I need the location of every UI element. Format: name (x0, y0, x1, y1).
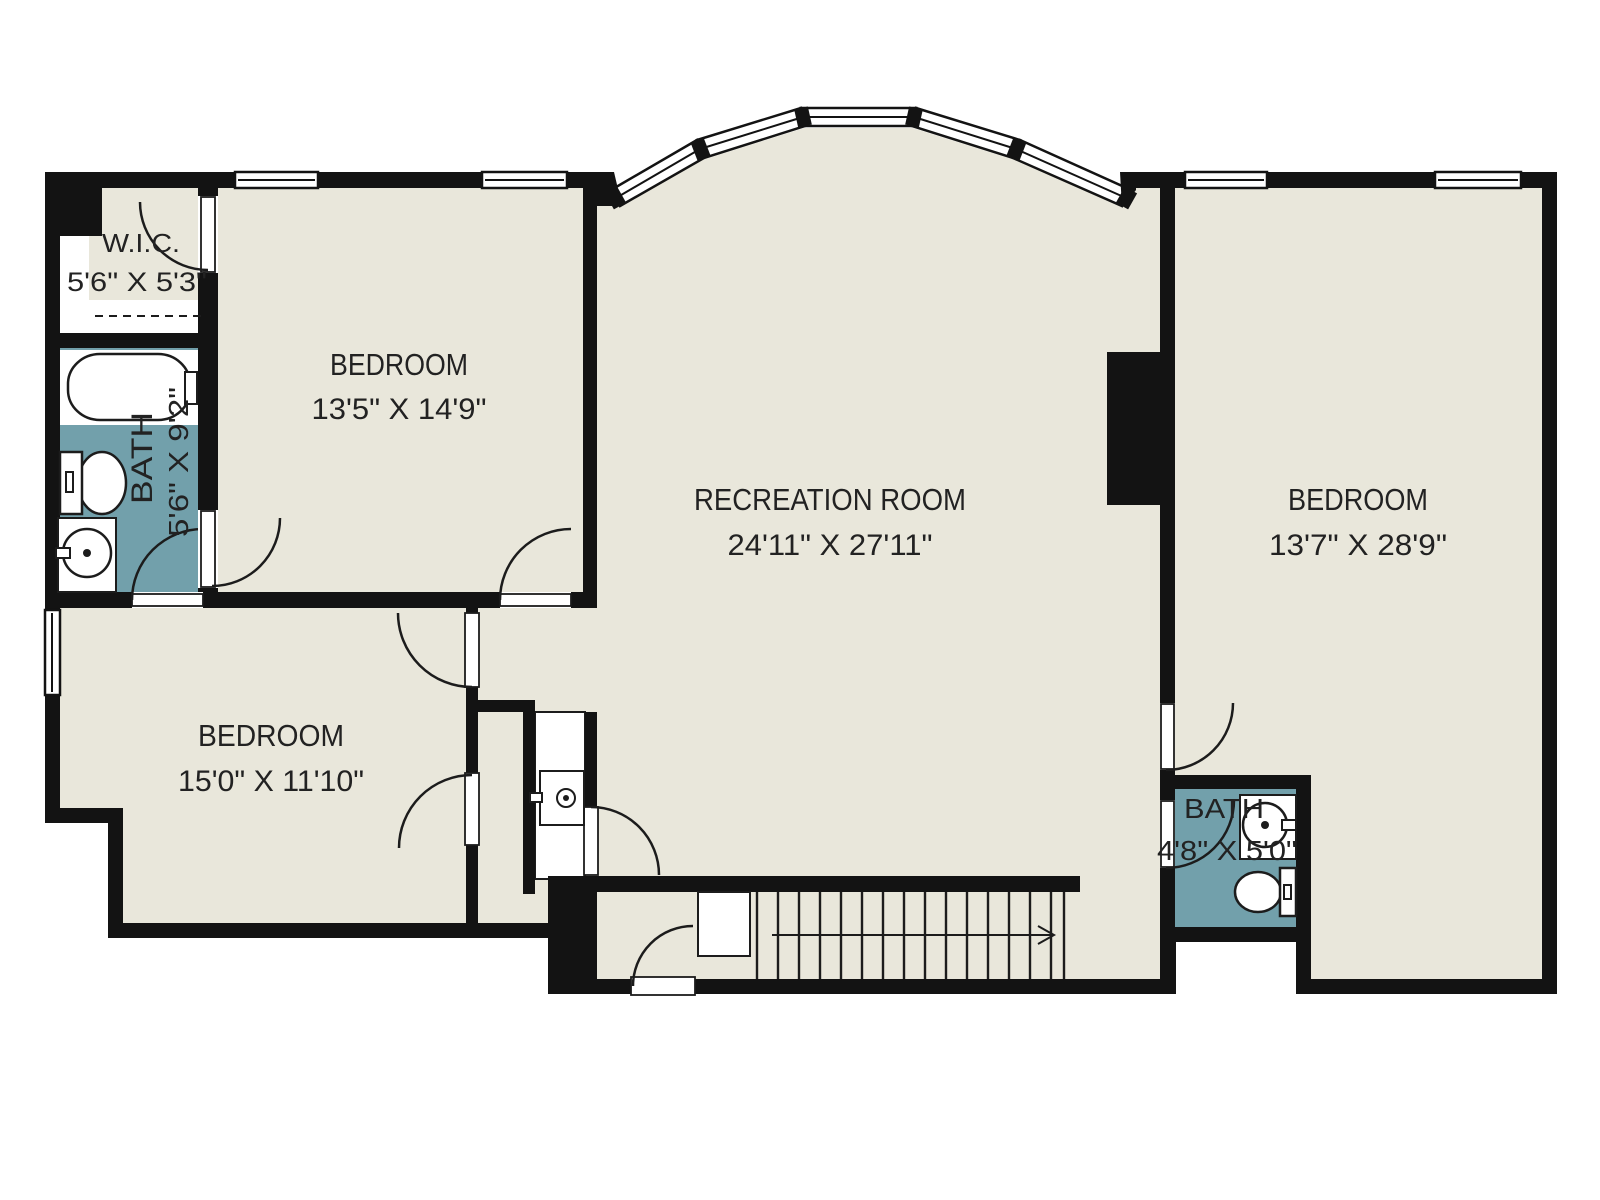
floor-plan: W.I.C. 5'6" X 5'3" BATH 5'6" X 9'2" BEDR… (0, 0, 1600, 1200)
window (45, 610, 60, 695)
room-label-recreation-name: RECREATION ROOM (694, 482, 966, 517)
room-label-bedroom1-dims: 13'5" X 14'9" (312, 393, 487, 426)
room-label-wic-dims: 5'6" X 5'3" (67, 267, 207, 297)
pedestal-sink-icon (56, 518, 116, 592)
window (235, 172, 318, 188)
room-label-bedroom-right-dims: 13'7" X 28'9" (1269, 529, 1447, 562)
toilet-icon (1235, 868, 1296, 916)
window (1185, 172, 1267, 188)
room-label-bedroom-right-name: BEDROOM (1288, 482, 1428, 517)
fireplace-block (1107, 352, 1172, 505)
room-label-bath-right-dims: 4'8" X 5'0" (1157, 835, 1297, 866)
room-label-bedroom1-name: BEDROOM (330, 347, 468, 382)
room-label-bath-right-name: BATH (1184, 793, 1264, 824)
room-label-bedroom2-name: BEDROOM (198, 718, 344, 753)
bedroom-upper-left-floor (198, 188, 597, 592)
room-label-bath-left-name: BATH (126, 412, 159, 504)
window (1435, 172, 1521, 188)
room-label-recreation-dims: 24'11" X 27'11" (728, 529, 933, 562)
stair-landing (698, 892, 750, 956)
window (482, 172, 567, 188)
room-label-wic-name: W.I.C. (102, 228, 180, 258)
room-label-bath-left-dims: 5'6" X 9'2" (163, 387, 194, 537)
room-label-bedroom2-dims: 15'0" X 11'10" (178, 765, 364, 798)
toilet-icon (60, 452, 126, 514)
